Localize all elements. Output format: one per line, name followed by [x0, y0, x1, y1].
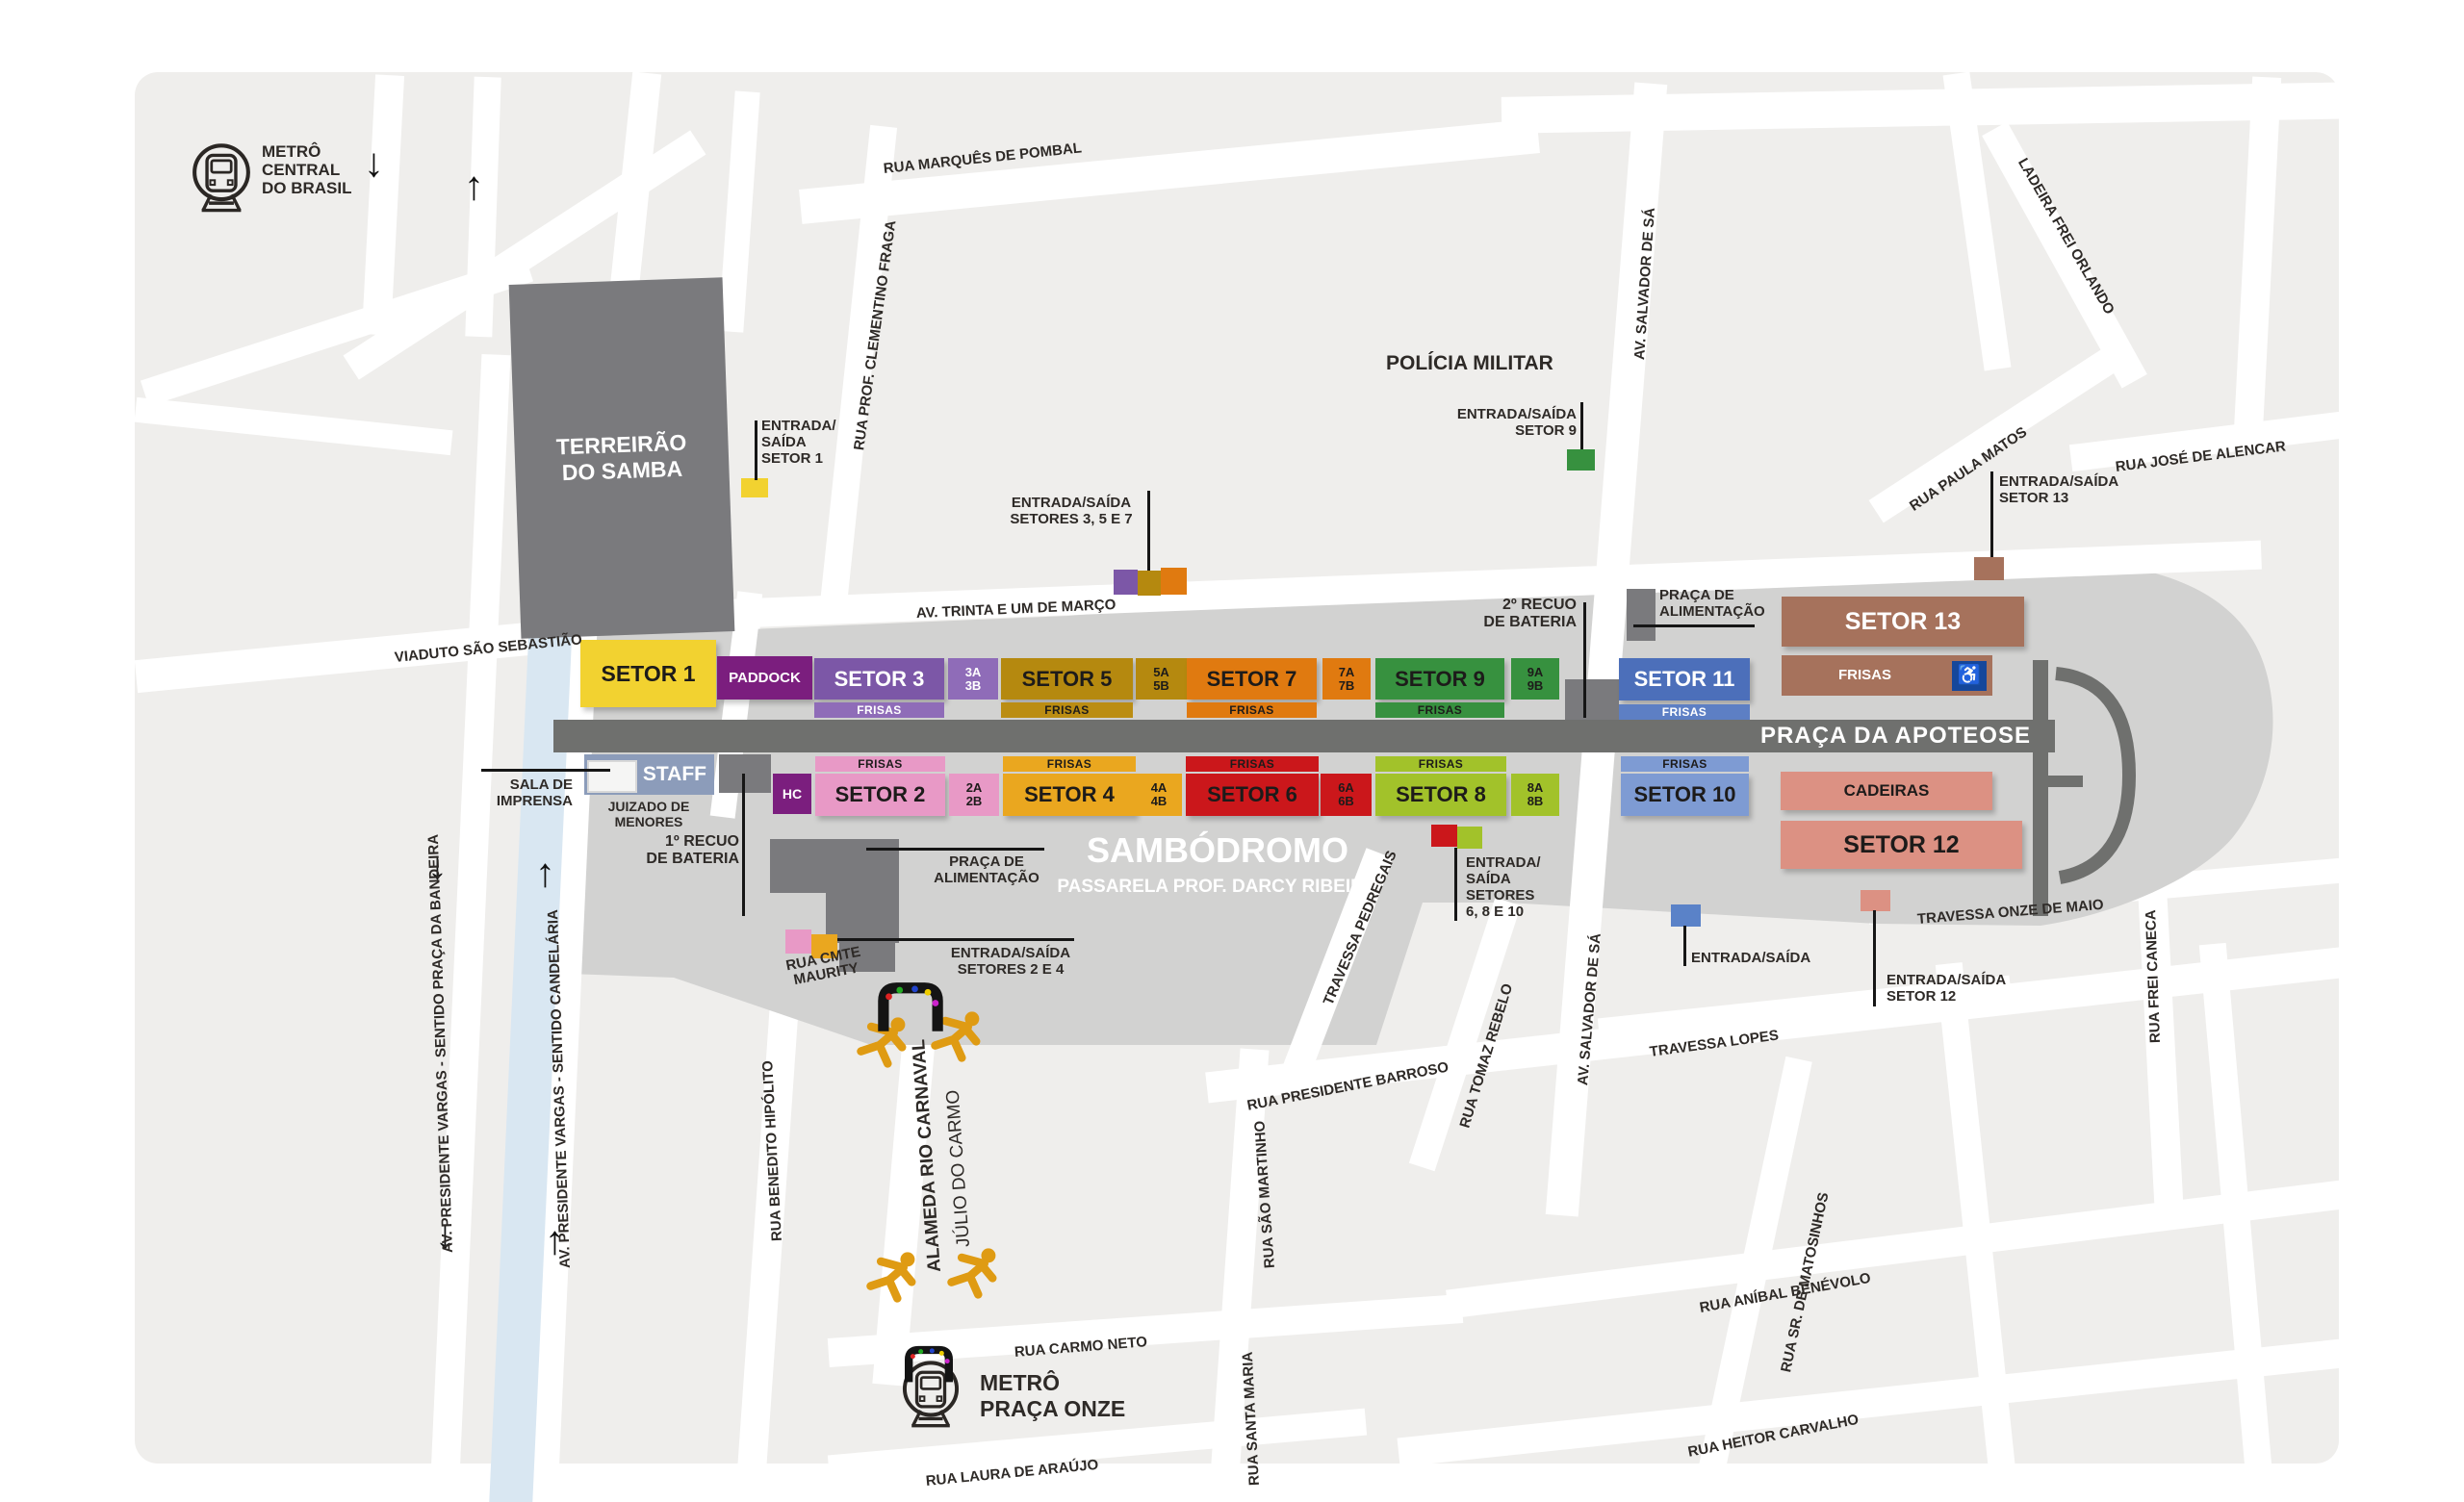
- entrance-l2: SETORES 3, 5 E 7: [989, 511, 1153, 527]
- sub-label: 9A: [1527, 666, 1544, 679]
- hc-box: HC: [773, 774, 811, 814]
- entrance-l1: ENTRADA/SAÍDA: [916, 945, 1105, 961]
- sub-label: 6B: [1338, 795, 1354, 808]
- station-l2: CENTRAL: [262, 161, 352, 179]
- alimentacao-block-south: [770, 839, 828, 893]
- alimentacao-l1: PRAÇA DE: [1659, 587, 1765, 603]
- alimentacao-block-south: [826, 839, 899, 943]
- frisas-setor-9: FRISAS: [1375, 702, 1504, 718]
- sub-label: 8A: [1527, 781, 1544, 795]
- carnival-arch-icon: [897, 1345, 961, 1384]
- dancer-icon: [943, 1247, 1005, 1299]
- setor-13: SETOR 13: [1782, 597, 2024, 647]
- setor-11: SETOR 11: [1619, 658, 1750, 700]
- frisas-setor-4: FRISAS: [1003, 756, 1136, 772]
- entrance-l2: SETOR 12: [1886, 988, 2006, 1005]
- frisas-setor-10: FRISAS: [1621, 756, 1749, 772]
- terreirao-label: DO SAMBA: [561, 456, 682, 486]
- frisas-setor-3: FRISAS: [814, 702, 944, 718]
- alimentacao-north-label: PRAÇA DE ALIMENTAÇÃO: [1659, 587, 1765, 620]
- setor-7ab: 7A 7B: [1322, 658, 1371, 700]
- arrow-down-icon: ↓: [364, 142, 384, 183]
- sub-label: 6A: [1338, 781, 1354, 795]
- alimentacao-south-label: PRAÇA DE ALIMENTAÇÃO: [917, 853, 1056, 886]
- recuo2-l1: 2º RECUO: [1440, 597, 1577, 614]
- praca-apoteose-text: PRAÇA DA APOTEOSE: [1760, 724, 2031, 748]
- recuo2-block: [1565, 679, 1619, 720]
- entrance-357-marker-olive: [1138, 571, 1161, 596]
- alimentacao-north-pointer: [1633, 624, 1755, 627]
- entrance-generic-pointer: [1683, 926, 1686, 966]
- entrance-setor12-label: ENTRADA/SAÍDA SETOR 12: [1886, 972, 2006, 1005]
- entrance-6810-marker-red: [1431, 825, 1457, 847]
- juizado-l1: JUIZADO DE: [576, 799, 722, 814]
- sub-label: 3A: [965, 666, 982, 679]
- sub-label: 7B: [1339, 679, 1355, 693]
- setor-7: SETOR 7: [1187, 658, 1317, 700]
- carnival-arch-icon: [876, 981, 945, 1033]
- sub-label: 8B: [1527, 795, 1544, 808]
- entrance-l2: SETOR 9: [1442, 422, 1577, 439]
- entrance-l1: ENTRADA/: [761, 418, 836, 434]
- metro-praca-onze-label: METRÔ PRAÇA ONZE: [980, 1370, 1125, 1422]
- entrance-357-pointer: [1147, 491, 1150, 573]
- frisas-setor-2: FRISAS: [815, 756, 945, 772]
- entrance-setor9-pointer: [1580, 402, 1583, 454]
- setor-3: SETOR 3: [814, 658, 944, 700]
- setor-3ab: 3A 3B: [948, 658, 998, 700]
- sala-imprensa-label: SALA DE IMPRENSA: [426, 776, 573, 809]
- setor-4ab: 4A 4B: [1136, 774, 1182, 816]
- station-l3: DO BRASIL: [262, 179, 352, 197]
- entrance-l2: SAÍDA: [1466, 871, 1541, 887]
- juizado-label: JUIZADO DE MENORES: [576, 799, 722, 829]
- terreirao-do-samba: TERREIRÃO DO SAMBA: [509, 277, 735, 639]
- recuo1-pointer: [742, 774, 745, 916]
- entrance-6810-pointer: [1454, 848, 1457, 921]
- entrance-generic-marker: [1671, 904, 1701, 927]
- setor-6: SETOR 6: [1186, 774, 1319, 816]
- frisas-setor-11: FRISAS: [1619, 704, 1750, 720]
- arrow-up-icon: ↑: [535, 853, 555, 893]
- entrance-l1: ENTRADA/: [1466, 854, 1541, 871]
- frisas-setor-5: FRISAS: [1001, 702, 1133, 718]
- entrance-setor12-pointer: [1873, 910, 1876, 1006]
- entrance-setor9-label: ENTRADA/SAÍDA SETOR 9: [1442, 406, 1577, 439]
- juizado-l2: MENORES: [576, 814, 722, 829]
- sub-label: 3B: [965, 679, 982, 693]
- setor-5: SETOR 5: [1001, 658, 1133, 700]
- entrance-setor1-pointer: [755, 420, 757, 480]
- entrance-6810-label: ENTRADA/ SAÍDA SETORES 6, 8 E 10: [1466, 854, 1541, 920]
- entrance-357-label: ENTRADA/SAÍDA SETORES 3, 5 E 7: [989, 495, 1153, 527]
- wheelchair-icon: ♿: [1952, 661, 1987, 691]
- sala-imprensa-box: [587, 760, 637, 793]
- entrance-l1: ENTRADA/SAÍDA: [989, 495, 1153, 511]
- sub-label: 7A: [1339, 666, 1355, 679]
- setor-9: SETOR 9: [1375, 658, 1504, 700]
- policia-militar-label: POLÍCIA MILITAR: [1386, 356, 1553, 371]
- setor-2ab: 2A 2B: [949, 774, 999, 816]
- sub-label: 2A: [966, 781, 983, 795]
- sala-imprensa-pointer: [481, 769, 610, 772]
- entrance-l2: SETORES 2 E 4: [916, 961, 1105, 978]
- setor-12: SETOR 12: [1781, 821, 2022, 869]
- sala-l1: SALA DE: [426, 776, 573, 793]
- cadeiras: CADEIRAS: [1781, 772, 1992, 810]
- entrance-6810-marker-green: [1457, 827, 1482, 849]
- entrance-24-pointer: [837, 938, 1074, 941]
- sub-label: 4B: [1151, 795, 1168, 808]
- recuo1-l1: 1º RECUO: [604, 833, 739, 851]
- setor-1: SETOR 1: [580, 640, 716, 707]
- entrance-24-marker-pink: [785, 929, 811, 954]
- setor-9ab: 9A 9B: [1511, 658, 1559, 700]
- alimentacao-l2: ALIMENTAÇÃO: [917, 870, 1056, 886]
- sambodromo-title: SAMBÓDROMO: [1054, 843, 1381, 858]
- dancer-icon: [862, 1251, 924, 1303]
- sub-label: 4A: [1151, 781, 1168, 795]
- recuo2-pointer: [1583, 602, 1586, 718]
- entrance-l4: 6, 8 E 10: [1466, 904, 1541, 920]
- setor-4: SETOR 4: [1003, 774, 1136, 816]
- praca-apoteose-bar-label: PRAÇA DA APOTEOSE: [1617, 722, 2031, 751]
- staff-label: STAFF: [643, 764, 706, 785]
- sambodromo-subtitle: PASSARELA PROF. DARCY RIBEIRO: [1035, 879, 1400, 895]
- entrance-l3: SETOR 1: [761, 450, 836, 467]
- map-background: [0, 0, 2464, 1502]
- paddock: PADDOCK: [717, 656, 812, 700]
- setor-6ab: 6A 6B: [1321, 774, 1372, 816]
- entrance-l1: ENTRADA/SAÍDA: [1886, 972, 2006, 988]
- entrance-setor1-marker: [741, 478, 768, 497]
- setor-2: SETOR 2: [815, 774, 945, 816]
- entrance-l2: SETOR 13: [1999, 490, 2118, 506]
- entrance-l2: SAÍDA: [761, 434, 836, 450]
- entrance-setor13-label: ENTRADA/SAÍDA SETOR 13: [1999, 473, 2118, 506]
- frisas-setor-6: FRISAS: [1186, 756, 1319, 772]
- entrance-l1: ENTRADA/SAÍDA: [1999, 473, 2118, 490]
- station-l2: PRAÇA ONZE: [980, 1396, 1125, 1422]
- entrance-357-marker-purple: [1114, 570, 1138, 595]
- setor-5ab: 5A 5B: [1136, 658, 1187, 700]
- station-l1: METRÔ: [980, 1370, 1125, 1396]
- alimentacao-south-pointer: [866, 848, 1044, 851]
- entrance-setor12-marker: [1861, 890, 1890, 911]
- entrance-l3: SETORES: [1466, 887, 1541, 904]
- entrance-setor13-pointer: [1990, 471, 1993, 560]
- entrance-setor9-marker: [1567, 449, 1595, 471]
- recuo2-l2: DE BATERIA: [1440, 614, 1577, 631]
- metro-central-label: METRÔ CENTRAL DO BRASIL: [262, 142, 352, 197]
- sala-l2: IMPRENSA: [426, 793, 573, 809]
- entrance-24-label: ENTRADA/SAÍDA SETORES 2 E 4: [916, 945, 1105, 978]
- alimentacao-l2: ALIMENTAÇÃO: [1659, 603, 1765, 620]
- alimentacao-block-north: [1627, 589, 1655, 641]
- sub-label: 2B: [966, 795, 983, 808]
- station-l1: METRÔ: [262, 142, 352, 161]
- setor-8: SETOR 8: [1375, 774, 1506, 816]
- frisas-setor-8: FRISAS: [1375, 756, 1506, 772]
- recuo1-l2: DE BATERIA: [604, 851, 739, 868]
- alimentacao-l1: PRAÇA DE: [917, 853, 1056, 870]
- sambodromo-map: TERREIRÃO DO SAMBA SETOR 1 PADDOCK SETOR…: [0, 0, 2464, 1502]
- entrance-setor13-marker: [1974, 557, 2004, 580]
- entrance-l1: ENTRADA/SAÍDA: [1442, 406, 1577, 422]
- entrance-setor1-label: ENTRADA/ SAÍDA SETOR 1: [761, 418, 836, 467]
- metro-icon-central: [189, 140, 254, 221]
- setor-10: SETOR 10: [1621, 774, 1749, 816]
- sub-label: 5A: [1153, 666, 1169, 679]
- sub-label: 9B: [1527, 679, 1544, 693]
- recuo1-label: 1º RECUO DE BATERIA: [604, 833, 739, 868]
- arrow-up-icon: ↑: [464, 165, 484, 206]
- entrance-generic-label: ENTRADA/SAÍDA: [1691, 951, 1810, 966]
- recuo1-block: [719, 754, 771, 793]
- frisas-setor-7: FRISAS: [1187, 702, 1317, 718]
- entrance-357-marker-orange: [1161, 568, 1187, 595]
- sub-label: 5B: [1153, 679, 1169, 693]
- recuo2-label: 2º RECUO DE BATERIA: [1440, 597, 1577, 631]
- setor-8ab: 8A 8B: [1511, 774, 1559, 816]
